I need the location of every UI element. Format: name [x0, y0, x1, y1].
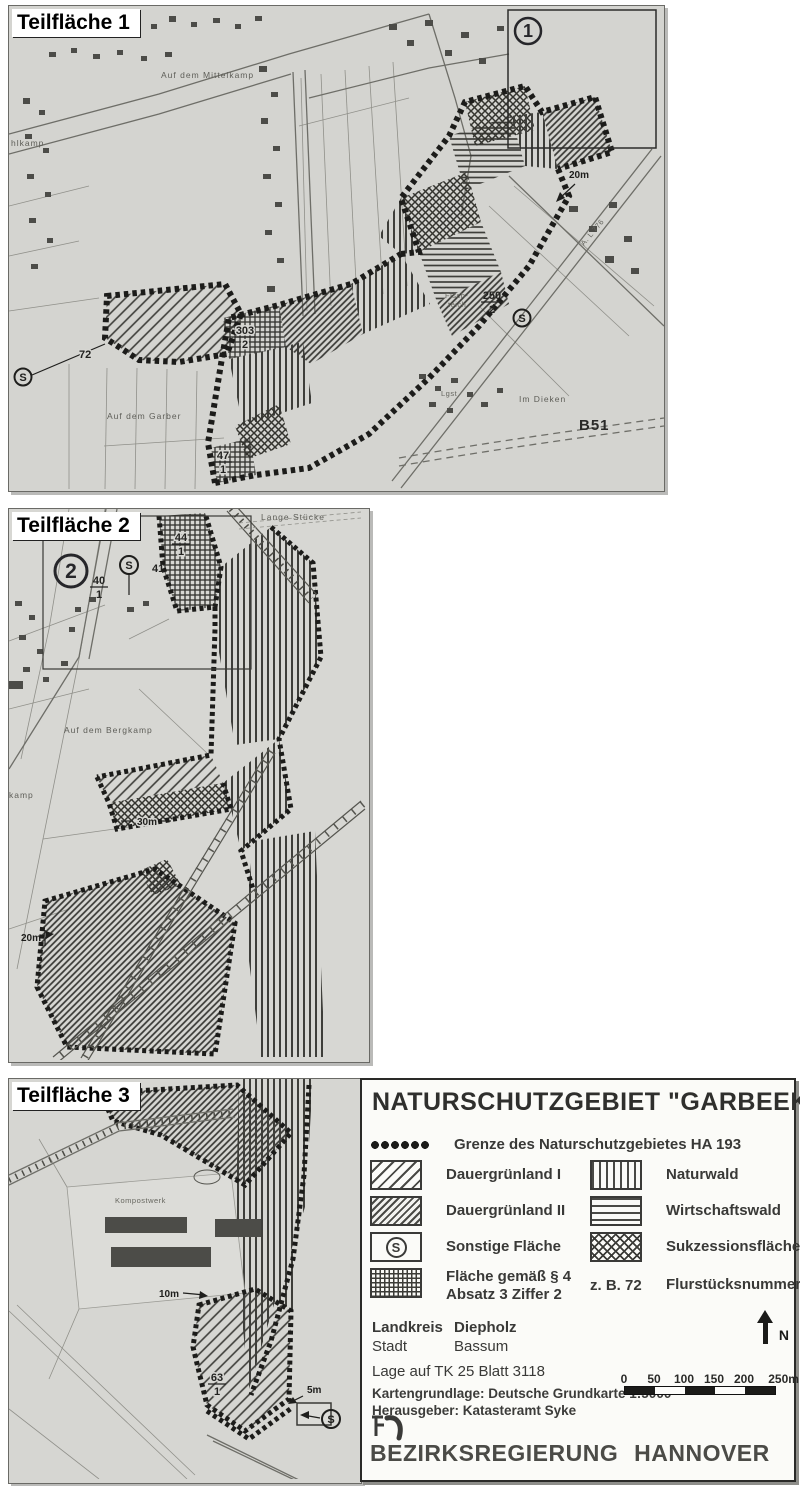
- stadt-value: Bassum: [454, 1337, 508, 1356]
- map-sheet-reference: Lage auf TK 25 Blatt 3118: [372, 1363, 545, 1380]
- s-circle-icon: S: [386, 1237, 407, 1258]
- svg-text:20m: 20m: [569, 170, 589, 181]
- svg-text:10m: 10m: [159, 1289, 179, 1300]
- north-label: N: [779, 1327, 789, 1343]
- map3-kompost-parcel: [67, 1173, 245, 1309]
- horizontal-lines-swatch: [590, 1196, 642, 1226]
- svg-text:1: 1: [214, 1386, 220, 1398]
- boundary-dots-swatch: [370, 1140, 430, 1150]
- label-kompostwerk: Kompostwerk: [115, 1196, 166, 1205]
- diagonal-hatch-light-swatch: [370, 1160, 422, 1190]
- svg-text:44: 44: [175, 532, 188, 544]
- label-fischteich: Fisch- teich: [445, 291, 468, 309]
- map1-canvas: 1 S S Auf dem Mittelkamp hlkamp Auf dem …: [9, 6, 664, 489]
- legend-row-paragraph4: Fläche gemäß § 4 Absatz 3 Ziffer 2: [370, 1268, 571, 1304]
- map2-canvas: 2 S 41 40 1 44 1 Lange Stücke Auf dem Be…: [9, 509, 367, 1060]
- publisher-name: BEZIRKSREGIERUNG HANNOVER: [370, 1440, 770, 1467]
- vertical-lines-swatch: [590, 1160, 642, 1190]
- map2-inset-number: 2: [65, 560, 77, 583]
- grid-hatch-swatch: [370, 1268, 422, 1298]
- legend-admin-block: LandkreisDiepholz StadtBassum: [372, 1318, 517, 1356]
- legend-title: NATURSCHUTZGEBIET "GARBEEKE": [372, 1088, 800, 1117]
- svg-text:2: 2: [489, 304, 495, 316]
- legend-row-sukzession: Sukzessionsfläche: [590, 1232, 800, 1262]
- north-arrow-icon: N: [754, 1310, 776, 1344]
- map3-title-chip: Teilfläche 3: [12, 1082, 140, 1110]
- parcel-41: 41: [152, 563, 164, 575]
- landkreis-label: Landkreis: [372, 1318, 454, 1337]
- legend-row-wirtschaftswald: Wirtschaftswald: [590, 1196, 781, 1226]
- parcel-72: 72: [79, 349, 91, 361]
- svg-text:20m: 20m: [21, 933, 41, 944]
- map1-title-chip: Teilfläche 1: [12, 9, 140, 37]
- diagonal-hatch-dense-swatch: [370, 1196, 422, 1226]
- stadt-label: Stadt: [372, 1337, 454, 1356]
- svg-text:Fisch-: Fisch-: [445, 291, 468, 300]
- svg-text:S: S: [327, 1414, 334, 1426]
- svg-text:47: 47: [217, 450, 229, 462]
- legend-row-flurstueck: z. B. 72 Flurstücksnummer: [590, 1276, 800, 1294]
- label-kamp: kamp: [9, 790, 34, 800]
- svg-text:1: 1: [96, 589, 102, 601]
- map-panel-teilflaeche-2: Teilfläche 2: [8, 508, 370, 1063]
- svg-text:S: S: [125, 560, 132, 572]
- legend-row-boundary: Grenze des Naturschutzgebietes HA 193: [370, 1136, 741, 1154]
- map3-sonstige-parcel: [297, 1403, 331, 1425]
- legend-row-sonstige: S Sonstige Fläche: [370, 1232, 561, 1262]
- label-b51: B51: [579, 417, 610, 434]
- legend-row-dauergruenland2: Dauergrünland II: [370, 1196, 565, 1226]
- label-lange-stuecke: Lange Stücke: [261, 512, 325, 522]
- svg-text:S: S: [518, 313, 525, 325]
- svg-text:teich: teich: [448, 300, 466, 309]
- flurstueck-example: z. B. 72: [590, 1277, 666, 1294]
- map3-canvas: Kompostwerk 10m 63 1 5m S: [9, 1079, 361, 1479]
- map1-inset-number: 1: [523, 21, 533, 41]
- svg-text:2: 2: [242, 339, 248, 351]
- svg-text:1: 1: [220, 464, 226, 476]
- svg-text:40: 40: [93, 575, 105, 587]
- svg-text:303: 303: [236, 325, 254, 337]
- svg-text:S: S: [19, 372, 26, 384]
- map-panel-teilflaeche-1: Teilfläche 1: [8, 5, 665, 492]
- cross-hatch-swatch: [590, 1232, 642, 1262]
- landkreis-value: Diepholz: [454, 1318, 517, 1337]
- map2-title-chip: Teilfläche 2: [12, 512, 140, 540]
- label-lgst: Lgst: [441, 389, 458, 398]
- svg-text:1: 1: [178, 546, 184, 558]
- svg-text:5m: 5m: [307, 1385, 322, 1396]
- label-bergkamp: Auf dem Bergkamp: [64, 725, 153, 735]
- legend-panel: NATURSCHUTZGEBIET "GARBEEKE" Grenze des …: [360, 1078, 796, 1482]
- scale-bar: 0 50 100 150 200 250m: [624, 1372, 792, 1398]
- scale-bar-segments: [624, 1386, 776, 1395]
- svg-text:30m: 30m: [137, 817, 157, 828]
- legend-row-dauergruenland1: Dauergrünland I: [370, 1160, 561, 1190]
- label-mittelkamp: Auf dem Mittelkamp: [161, 70, 254, 80]
- s-circle-box-swatch: S: [370, 1232, 422, 1262]
- legend-row-naturwald: Naturwald: [590, 1160, 739, 1190]
- label-garber: Auf dem Garber: [107, 411, 181, 421]
- label-im-dieken: Im Dieken: [519, 394, 566, 404]
- svg-text:250: 250: [483, 290, 501, 302]
- label-hlkamp: hlkamp: [11, 138, 44, 148]
- map-panel-teilflaeche-3: Teilfläche 3: [8, 1078, 362, 1484]
- svg-text:63: 63: [211, 1372, 223, 1384]
